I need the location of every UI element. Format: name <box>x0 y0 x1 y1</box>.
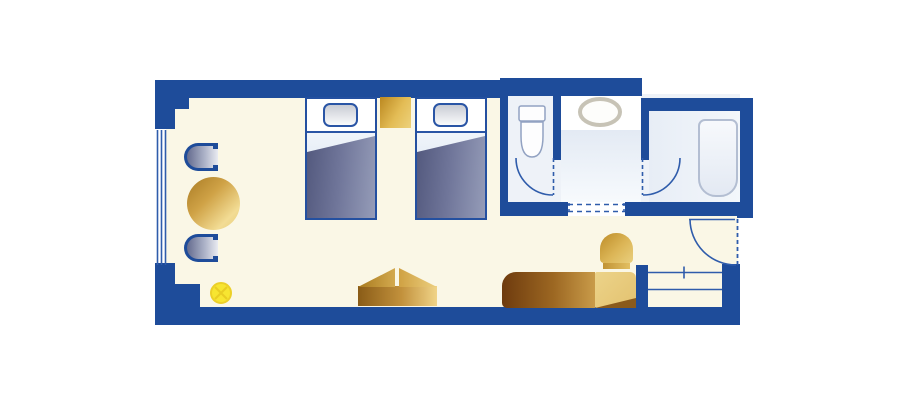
vanity-floor <box>561 130 641 202</box>
bathroom-wall-left <box>500 78 508 216</box>
bed-sheet-line <box>307 131 375 133</box>
bed-sheet-line <box>417 131 485 133</box>
bed-pillow <box>433 103 468 127</box>
wall-corner-top-left-deep <box>155 80 175 129</box>
side-chair <box>600 233 633 263</box>
armchair-top <box>184 143 218 171</box>
wall-bottom <box>200 307 740 325</box>
window-glazing-lines <box>158 130 166 265</box>
luggage-bench <box>358 286 437 306</box>
armchair-bottom <box>184 234 218 262</box>
twin-bed-left <box>305 97 377 220</box>
twin-bed-right <box>415 97 487 220</box>
bathtub-room-wall-top <box>642 98 753 111</box>
floor-plan <box>0 0 910 400</box>
floor-lamp <box>210 282 232 304</box>
wall-closet-stub <box>636 265 648 310</box>
sofa <box>502 272 636 308</box>
bathroom-wall-top <box>500 78 642 96</box>
vanity-opening <box>568 202 625 216</box>
bathtub <box>698 119 738 197</box>
wall-toilet-vanity <box>553 94 561 160</box>
armchair-arm <box>213 143 218 149</box>
round-table <box>187 177 240 230</box>
bed-pillow <box>323 103 358 127</box>
vanity-counter <box>561 94 641 131</box>
armchair-arm <box>213 234 218 240</box>
armchair-arm <box>213 256 218 262</box>
armchair-arm <box>213 165 218 171</box>
sofa-seat <box>502 272 595 308</box>
nightstand <box>380 97 411 128</box>
wall-vanity-bathtub <box>641 98 649 160</box>
bathroom-wall-bottom-right <box>625 202 741 216</box>
wall-top <box>189 80 505 98</box>
bathroom-wall-right <box>740 98 753 209</box>
wall-closet-right <box>722 264 740 310</box>
wall-corner-bottom-left <box>155 284 200 325</box>
side-chair-base <box>603 263 630 269</box>
bathroom-wall-bottom-left <box>500 202 568 216</box>
